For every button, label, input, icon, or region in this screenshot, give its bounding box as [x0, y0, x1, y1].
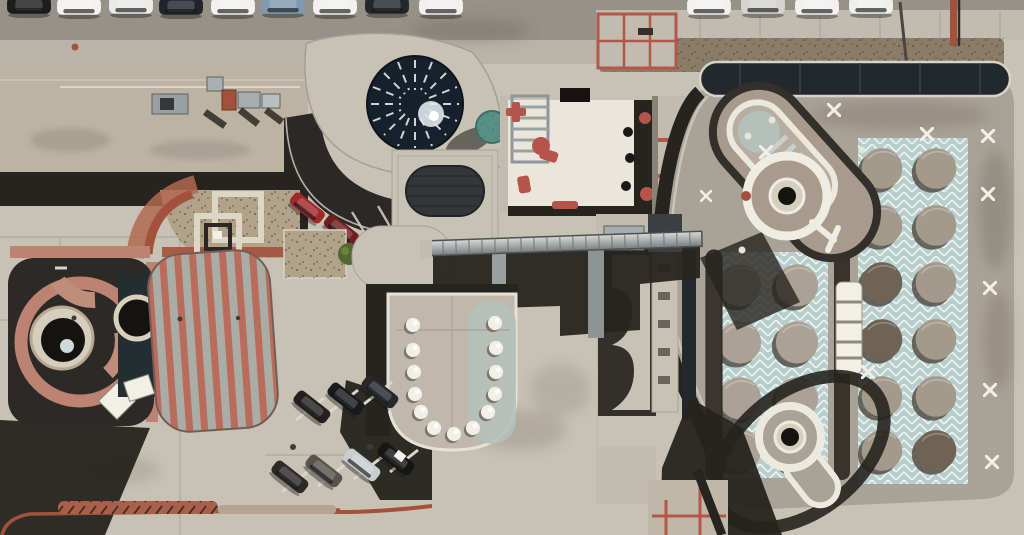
barrel-roof — [146, 248, 280, 434]
white-ladder-structure — [836, 282, 862, 374]
ring-oculus — [781, 428, 799, 446]
top-parking-row — [7, 0, 893, 19]
parked-car — [159, 0, 203, 19]
planter-texture — [284, 230, 346, 278]
parked-car — [57, 0, 101, 19]
bench-shadow — [638, 28, 653, 35]
paver-band — [218, 505, 336, 514]
parked-car — [365, 0, 409, 18]
white-courtyard-group — [500, 88, 660, 216]
hvac-unit-red — [222, 90, 236, 110]
parked-car — [795, 0, 839, 19]
parked-car — [741, 0, 785, 18]
red-roof-dot — [741, 191, 751, 201]
roof-block — [560, 88, 590, 102]
aerial-photo-canvas — [0, 0, 1024, 535]
planter-core — [213, 231, 222, 239]
radial-skylight-dome — [367, 56, 463, 152]
hvac-vent — [160, 98, 174, 110]
tower-north-band — [10, 246, 150, 258]
red-grid-plaza — [598, 14, 676, 68]
aerial-photo — [0, 0, 1024, 535]
parked-car — [687, 0, 731, 19]
parked-car — [419, 0, 463, 19]
hvac-unit — [262, 94, 280, 108]
bridge-support — [588, 248, 604, 338]
brick-band-texture — [58, 501, 218, 514]
parked-car — [313, 0, 357, 19]
striped-canopy — [146, 248, 280, 434]
stadium-skylight — [406, 166, 484, 216]
parked-car — [211, 0, 255, 19]
shrub-highlight — [341, 247, 349, 255]
red-pole — [950, 0, 957, 46]
bridge-west-stub — [420, 240, 432, 258]
hvac-unit — [238, 92, 260, 108]
ring-oculus — [778, 187, 796, 205]
parked-car — [109, 0, 153, 18]
tower-dome-cap — [60, 339, 74, 353]
parked-car — [261, 0, 305, 18]
tower-oculus — [41, 318, 85, 362]
parked-car — [7, 0, 51, 18]
entry-south-pad — [598, 416, 656, 446]
parked-car — [849, 0, 893, 18]
hvac-unit — [207, 77, 223, 91]
top-sidewalk-left — [0, 40, 600, 66]
